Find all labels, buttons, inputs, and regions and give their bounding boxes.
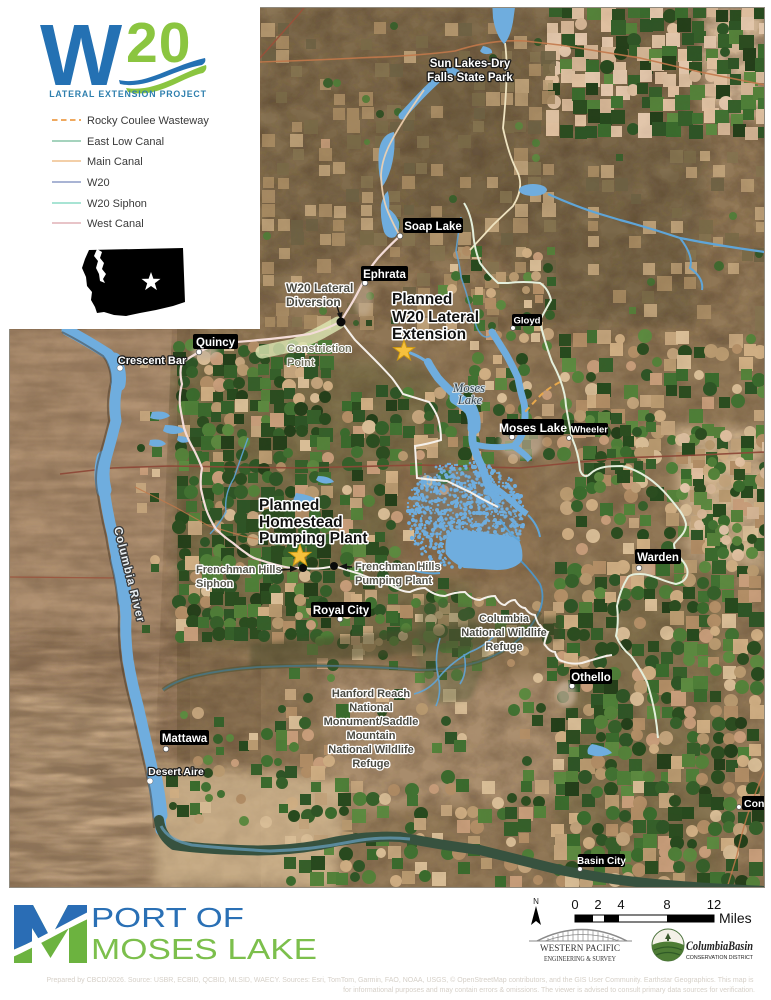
svg-text:0: 0 xyxy=(571,897,578,912)
svg-text:MOSES LAKE: MOSES LAKE xyxy=(91,934,317,966)
svg-text:CONSERVATION DISTRICT: CONSERVATION DISTRICT xyxy=(686,955,754,961)
svg-text:East Low Canal: East Low Canal xyxy=(87,136,164,148)
svg-text:West Canal: West Canal xyxy=(87,218,144,230)
svg-text:Homestead: Homestead xyxy=(259,514,343,531)
svg-text:4: 4 xyxy=(617,897,624,912)
svg-text:Hanford Reach: Hanford Reach xyxy=(332,688,411,700)
svg-text:N: N xyxy=(533,897,539,906)
svg-text:8: 8 xyxy=(663,897,670,912)
svg-text:Desert Aire: Desert Aire xyxy=(148,766,204,778)
svg-text:Planned: Planned xyxy=(392,291,452,308)
svg-text:Ephrata: Ephrata xyxy=(363,269,406,281)
svg-text:Gloyd: Gloyd xyxy=(514,316,541,327)
svg-text:W20 Lateral: W20 Lateral xyxy=(286,281,353,295)
svg-text:ColumbiaBasin: ColumbiaBasin xyxy=(686,939,753,953)
svg-text:Columbia: Columbia xyxy=(479,613,530,625)
svg-text:WESTERN PACIFIC: WESTERN PACIFIC xyxy=(540,944,620,954)
svg-text:Mountain: Mountain xyxy=(347,730,396,742)
svg-text:National Wildlife: National Wildlife xyxy=(461,627,546,639)
svg-text:Refuge: Refuge xyxy=(485,641,522,653)
svg-text:Mattawa: Mattawa xyxy=(162,733,208,745)
svg-text:Point: Point xyxy=(287,357,315,369)
svg-text:Extension: Extension xyxy=(392,326,466,343)
svg-text:Refuge: Refuge xyxy=(352,758,389,770)
svg-text:Pumping Plant: Pumping Plant xyxy=(355,575,432,587)
svg-text:Planned: Planned xyxy=(259,497,319,514)
svg-text:PORT OF: PORT OF xyxy=(91,902,244,933)
svg-text:Quincy: Quincy xyxy=(196,337,236,349)
svg-text:Royal City: Royal City xyxy=(313,605,370,617)
svg-text:W20: W20 xyxy=(87,177,110,189)
svg-text:Monument/Saddle: Monument/Saddle xyxy=(324,716,419,728)
svg-text:Moses Lake: Moses Lake xyxy=(499,421,567,435)
svg-text:Frenchman Hills: Frenchman Hills xyxy=(196,564,282,576)
svg-text:Miles: Miles xyxy=(719,910,752,926)
svg-text:National: National xyxy=(349,702,392,714)
svg-text:Constriction: Constriction xyxy=(287,343,352,355)
svg-text:2: 2 xyxy=(594,897,601,912)
svg-text:National Wildlife: National Wildlife xyxy=(328,744,413,756)
svg-text:Rocky Coulee Wasteway: Rocky Coulee Wasteway xyxy=(87,115,209,127)
svg-text:Soap Lake: Soap Lake xyxy=(404,221,462,233)
svg-text:Prepared by CBCD/2026. Source:: Prepared by CBCD/2026. Source: USBR, ECB… xyxy=(47,976,754,984)
svg-text:W20 Lateral: W20 Lateral xyxy=(392,309,479,326)
svg-text:Crescent Bar: Crescent Bar xyxy=(118,355,187,367)
svg-text:Basin City: Basin City xyxy=(577,856,626,867)
svg-text:Pumping Plant: Pumping Plant xyxy=(259,530,368,547)
svg-text:for informational purposes and: for informational purposes and may conta… xyxy=(343,987,755,994)
svg-text:Frenchman Hills: Frenchman Hills xyxy=(355,561,441,573)
svg-text:Sun Lakes-Dry: Sun Lakes-Dry xyxy=(430,58,511,70)
svg-text:Main Canal: Main Canal xyxy=(87,156,143,168)
svg-text:Diversion: Diversion xyxy=(286,295,341,309)
svg-text:Othello: Othello xyxy=(571,672,611,684)
svg-text:W20 Siphon: W20 Siphon xyxy=(87,198,147,210)
svg-text:Siphon: Siphon xyxy=(196,578,234,590)
svg-text:Falls State Park: Falls State Park xyxy=(427,72,513,84)
svg-text:ENGINEERING & SURVEY: ENGINEERING & SURVEY xyxy=(544,954,616,963)
svg-text:Lake: Lake xyxy=(457,393,483,407)
svg-text:Warden: Warden xyxy=(637,552,679,564)
svg-text:LATERAL EXTENSION PROJECT: LATERAL EXTENSION PROJECT xyxy=(49,89,207,99)
svg-text:Wheeler: Wheeler xyxy=(571,425,608,436)
svg-text:Conn: Conn xyxy=(744,798,765,810)
